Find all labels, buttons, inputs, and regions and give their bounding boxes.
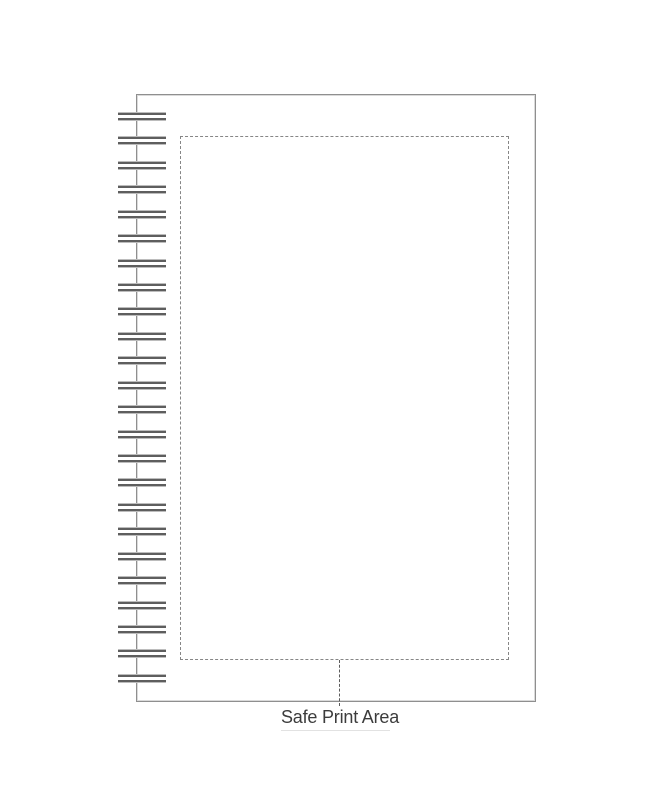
notebook-template-canvas: Safe Print Area (0, 0, 660, 799)
notebook-page (136, 94, 536, 702)
label-underline (281, 730, 390, 731)
safe-print-area-label: Safe Print Area (281, 706, 399, 728)
leader-line (339, 660, 340, 706)
safe-print-area-outline (180, 136, 509, 660)
